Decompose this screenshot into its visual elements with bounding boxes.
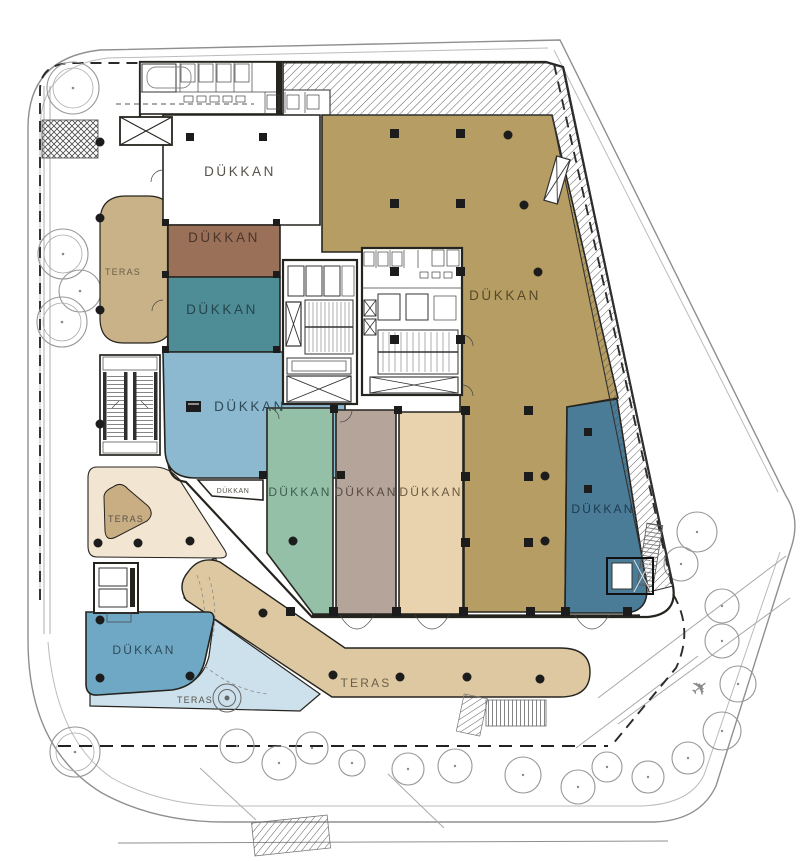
driveway-line-1 <box>200 768 256 820</box>
core2-outline <box>362 248 462 395</box>
column <box>330 405 338 413</box>
column <box>392 607 401 616</box>
column <box>162 219 169 226</box>
column <box>561 607 570 616</box>
column <box>259 133 267 141</box>
column <box>541 472 550 481</box>
column <box>94 539 103 548</box>
column <box>461 406 470 415</box>
column <box>456 335 465 344</box>
column <box>524 472 533 481</box>
column <box>456 199 465 208</box>
label-terrace-lightblue: TERAS <box>177 695 213 705</box>
column <box>526 607 535 616</box>
column <box>390 267 399 276</box>
wc-stall <box>287 95 299 109</box>
label-shop-top: DÜKKAN <box>204 164 276 179</box>
floor-plan-page: ✈ <box>0 0 800 861</box>
column <box>541 537 550 546</box>
column <box>273 219 280 226</box>
shaft-box <box>364 319 376 335</box>
column <box>524 406 533 415</box>
column <box>584 428 592 436</box>
column <box>96 420 105 429</box>
label-shop-brown: DÜKKAN <box>188 230 260 245</box>
column <box>96 138 105 147</box>
door-swing <box>151 170 163 182</box>
escalators <box>100 355 160 455</box>
ramp-hatch <box>456 694 487 736</box>
label-shop-teal: DÜKKAN <box>186 302 258 317</box>
column <box>329 607 338 616</box>
column <box>390 199 399 208</box>
label-shop-khaki: DÜKKAN <box>469 288 541 303</box>
label-terrace-band: TERAS <box>340 676 391 690</box>
column <box>520 201 529 210</box>
column <box>584 485 592 493</box>
column <box>456 267 465 276</box>
room-shop-green <box>267 408 333 614</box>
column <box>329 671 338 680</box>
escalator-rail <box>154 372 158 440</box>
column <box>461 472 470 481</box>
column <box>162 271 169 278</box>
label-terrace-triangle: TERAS <box>108 514 144 524</box>
parking-line-3 <box>576 656 698 748</box>
column <box>396 673 405 682</box>
shaft-box <box>370 377 458 393</box>
column <box>456 129 465 138</box>
wc-stall <box>307 95 319 109</box>
column <box>459 607 468 616</box>
shaft-box <box>287 376 351 402</box>
column <box>390 129 399 138</box>
shaft-box <box>286 302 301 346</box>
column <box>461 538 470 547</box>
column <box>134 539 143 548</box>
column <box>286 607 295 616</box>
column <box>96 306 105 315</box>
label-shop-taupe: DÜKKAN <box>334 485 397 499</box>
escalator-rail <box>124 372 128 440</box>
column <box>536 675 545 684</box>
column <box>96 616 105 625</box>
crosswalk-left <box>42 120 98 158</box>
column <box>273 271 280 278</box>
label-terrace-left: TERAS <box>105 267 141 277</box>
sign-icons <box>186 401 201 412</box>
label-shop-darkblue: DÜKKAN <box>571 502 634 516</box>
label-shop-mini: DÜKKAN <box>217 487 250 495</box>
label-shop-green: DÜKKAN <box>268 485 331 499</box>
column <box>289 537 298 546</box>
road-edge-bottom <box>118 841 668 843</box>
column <box>623 607 632 616</box>
column <box>534 268 543 277</box>
column <box>96 674 105 683</box>
column <box>186 133 194 141</box>
column <box>390 335 399 344</box>
escalator-rail <box>133 372 137 440</box>
column <box>394 406 402 414</box>
core-elevator-stair <box>283 260 357 404</box>
label-shop-lightblue: DÜKKAN <box>214 399 286 414</box>
column <box>273 346 280 353</box>
label-shop-beige: DÜKKAN <box>399 485 462 499</box>
column <box>524 538 533 547</box>
steps <box>486 700 546 726</box>
floor-plan-canvas: ✈ <box>0 0 800 861</box>
crosswalk-bottom <box>252 815 331 856</box>
column <box>259 609 268 618</box>
entrance-steps <box>456 694 546 736</box>
shaft-box <box>120 117 172 145</box>
escalator-lane <box>136 374 153 438</box>
retaining-wall-left <box>44 86 50 634</box>
column <box>96 214 105 223</box>
shaft-box <box>364 300 376 316</box>
service-box-room <box>612 563 632 589</box>
column <box>162 346 169 353</box>
fountain-feature-center <box>225 696 230 701</box>
column <box>337 471 345 479</box>
lift-rail <box>130 568 135 607</box>
corner-lift <box>94 563 138 622</box>
column <box>259 471 267 479</box>
room-shop-beige <box>399 412 463 614</box>
escalator-rail <box>103 372 107 440</box>
storefront-icon <box>186 401 201 412</box>
column <box>463 673 472 682</box>
label-shop-corner: DÜKKAN <box>112 643 175 657</box>
room-shop-taupe <box>336 410 396 614</box>
airplane-icon: ✈ <box>686 674 714 703</box>
escalator-lane <box>107 374 124 438</box>
column <box>186 672 195 681</box>
column <box>186 537 195 546</box>
column <box>504 131 513 140</box>
